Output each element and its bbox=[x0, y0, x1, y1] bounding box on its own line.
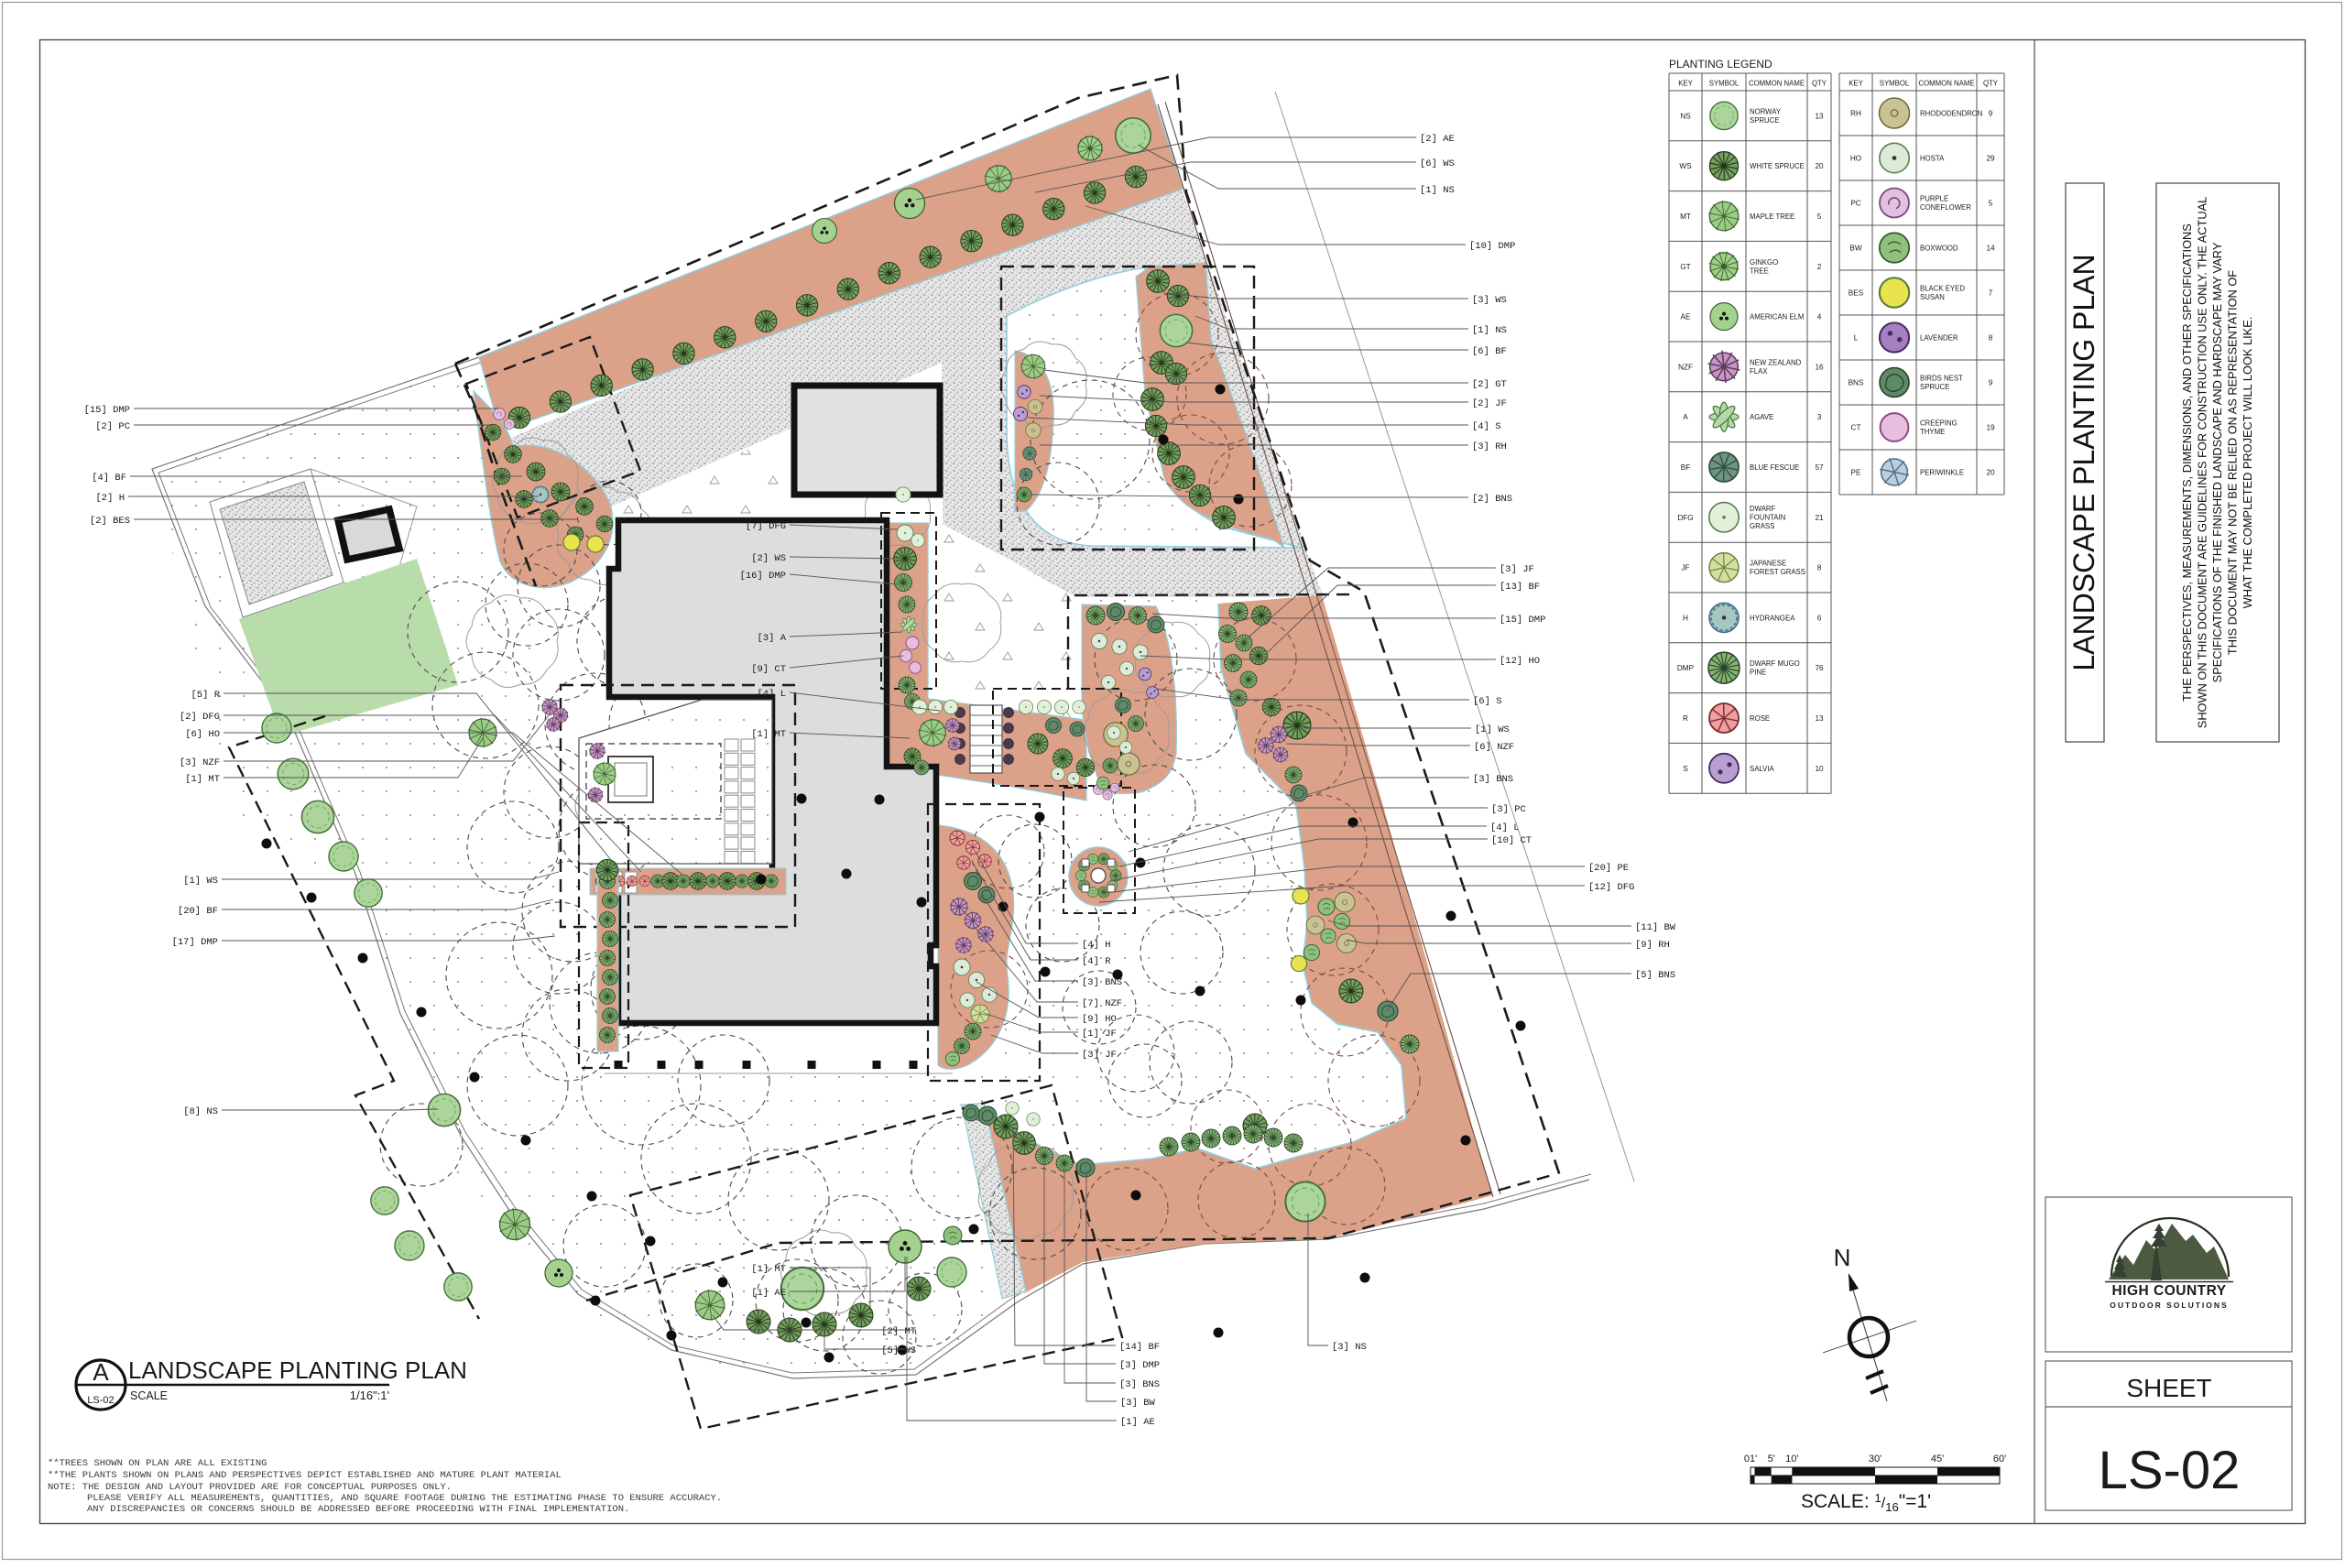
svg-text:[3] DMP: [3] DMP bbox=[1119, 1360, 1160, 1371]
svg-text:HOSTA: HOSTA bbox=[1920, 155, 1945, 163]
svg-text:COMMON NAME: COMMON NAME bbox=[1918, 80, 1974, 88]
svg-text:[15] DMP: [15] DMP bbox=[1500, 615, 1545, 626]
svg-text:[2] BES: [2] BES bbox=[90, 516, 130, 527]
svg-text:THE PERSPECTIVES, MEASUREMENTS: THE PERSPECTIVES, MEASUREMENTS, DIMENSIO… bbox=[2180, 223, 2194, 702]
svg-text:RH: RH bbox=[1850, 110, 1861, 118]
svg-text:HYDRANGEA: HYDRANGEA bbox=[1750, 614, 1795, 622]
svg-text:[3] BW: [3] BW bbox=[1120, 1398, 1156, 1409]
svg-text:[12] HO: [12] HO bbox=[1500, 656, 1540, 667]
svg-text:[6] S: [6] S bbox=[1473, 696, 1502, 707]
svg-text:SHOWN ON THIS DOCUMENT ARE GUI: SHOWN ON THIS DOCUMENT ARE GUIDELINES FO… bbox=[2196, 197, 2209, 728]
svg-text:H: H bbox=[1683, 614, 1688, 622]
svg-text:THIS DOCUMENT MAY NOT BE RELIE: THIS DOCUMENT MAY NOT BE RELIED ON AS RE… bbox=[2226, 270, 2240, 655]
svg-text:[20] BF: [20] BF bbox=[178, 906, 218, 917]
svg-text:SHEET: SHEET bbox=[2126, 1374, 2211, 1402]
svg-text:AGAVE: AGAVE bbox=[1750, 413, 1773, 421]
svg-text:[14] BF: [14] BF bbox=[1119, 1342, 1160, 1353]
svg-text:BIRDS NEST: BIRDS NEST bbox=[1920, 375, 1963, 383]
svg-text:PLANTING LEGEND: PLANTING LEGEND bbox=[1669, 58, 1772, 71]
svg-text:[13] BF: [13] BF bbox=[1500, 582, 1540, 593]
svg-text:BLUE FESCUE: BLUE FESCUE bbox=[1750, 463, 1799, 472]
svg-text:QTY: QTY bbox=[1812, 80, 1827, 88]
svg-text:19: 19 bbox=[1986, 424, 1995, 432]
svg-text:[5] BNS: [5] BNS bbox=[1635, 970, 1675, 981]
svg-text:FLAX: FLAX bbox=[1750, 367, 1768, 376]
svg-text:SCALE: 1/16"=1': SCALE: 1/16"=1' bbox=[1801, 1491, 1931, 1514]
svg-text:60': 60' bbox=[1993, 1454, 2006, 1465]
svg-text:[9] CT: [9] CT bbox=[751, 664, 786, 675]
svg-text:CONEFLOWER: CONEFLOWER bbox=[1920, 203, 1971, 212]
svg-text:RHODODENDRON: RHODODENDRON bbox=[1920, 110, 1982, 118]
svg-text:20: 20 bbox=[1986, 469, 1995, 477]
svg-text:[15] DMP: [15] DMP bbox=[84, 405, 130, 416]
svg-text:BW: BW bbox=[1849, 245, 1861, 253]
svg-text:3: 3 bbox=[1817, 413, 1822, 421]
svg-text:[1] WS: [1] WS bbox=[1475, 724, 1510, 735]
svg-text:L: L bbox=[1854, 334, 1859, 343]
svg-text:FOREST GRASS: FOREST GRASS bbox=[1750, 568, 1805, 576]
svg-text:21: 21 bbox=[1815, 514, 1824, 522]
svg-text:[1] NS: [1] NS bbox=[1472, 325, 1507, 336]
svg-text:1/16":1': 1/16":1' bbox=[350, 1388, 389, 1402]
svg-text:WS: WS bbox=[1679, 162, 1692, 170]
svg-text:ROSE: ROSE bbox=[1750, 714, 1770, 723]
svg-text:[2] MT: [2] MT bbox=[881, 1326, 916, 1337]
svg-text:PINE: PINE bbox=[1750, 669, 1766, 677]
svg-text:[7] NZF: [7] NZF bbox=[1082, 998, 1122, 1009]
svg-text:[1] MT: [1] MT bbox=[751, 729, 786, 740]
svg-text:[1] NS: [1] NS bbox=[1420, 185, 1455, 196]
svg-text:[9] HO: [9] HO bbox=[1082, 1014, 1117, 1025]
svg-text:NOTE: THE DESIGN AND LAYOUT P: NOTE: THE DESIGN AND LAYOUT PROVIDED ARE… bbox=[48, 1482, 452, 1493]
svg-text:[3] A: [3] A bbox=[757, 633, 786, 644]
svg-text:AMERICAN ELM: AMERICAN ELM bbox=[1750, 313, 1804, 321]
svg-text:[2] WS: [2] WS bbox=[751, 553, 786, 564]
svg-text:[2] BNS: [2] BNS bbox=[1472, 494, 1512, 505]
svg-text:SYMBOL: SYMBOL bbox=[1880, 80, 1910, 88]
svg-text:[1] AE: [1] AE bbox=[751, 1288, 786, 1299]
svg-text:[4] BF: [4] BF bbox=[92, 473, 126, 484]
svg-text:30': 30' bbox=[1869, 1454, 1881, 1465]
svg-text:BOXWOOD: BOXWOOD bbox=[1920, 245, 1958, 253]
svg-text:4: 4 bbox=[1817, 313, 1822, 321]
svg-text:R: R bbox=[1683, 714, 1688, 723]
svg-text:9: 9 bbox=[1989, 379, 1993, 387]
svg-text:COMMON NAME: COMMON NAME bbox=[1749, 80, 1805, 88]
svg-text:13: 13 bbox=[1815, 112, 1824, 120]
svg-text:[12] DFG: [12] DFG bbox=[1588, 882, 1634, 893]
svg-text:[2] DFG: [2] DFG bbox=[180, 712, 220, 723]
svg-text:5: 5 bbox=[1989, 200, 1993, 208]
svg-text:PE: PE bbox=[1851, 469, 1861, 477]
svg-text:14: 14 bbox=[1986, 245, 1995, 253]
svg-text:LS-02: LS-02 bbox=[87, 1395, 114, 1406]
svg-text:13: 13 bbox=[1815, 714, 1824, 723]
svg-text:AE: AE bbox=[1681, 313, 1691, 321]
svg-text:01': 01' bbox=[1744, 1454, 1757, 1465]
svg-text:[10] CT: [10] CT bbox=[1491, 835, 1532, 846]
svg-text:GT: GT bbox=[1680, 263, 1690, 271]
svg-text:NZF: NZF bbox=[1678, 363, 1693, 371]
svg-text:WHITE SPRUCE: WHITE SPRUCE bbox=[1750, 162, 1805, 170]
svg-text:KEY: KEY bbox=[1849, 80, 1863, 88]
svg-text:GINKGO: GINKGO bbox=[1750, 258, 1778, 267]
svg-text:HO: HO bbox=[1850, 155, 1861, 163]
svg-text:TREE: TREE bbox=[1750, 267, 1769, 275]
svg-text:[3] NZF: [3] NZF bbox=[180, 757, 220, 768]
svg-text:A: A bbox=[93, 1358, 109, 1386]
svg-text:PC: PC bbox=[1850, 200, 1860, 208]
svg-text:[6] BF: [6] BF bbox=[1472, 346, 1507, 357]
svg-text:DWARF MUGO: DWARF MUGO bbox=[1750, 659, 1800, 668]
svg-text:[4] R: [4] R bbox=[1082, 956, 1111, 967]
svg-text:57: 57 bbox=[1815, 463, 1824, 472]
svg-text:[6] WS: [6] WS bbox=[1420, 158, 1455, 169]
svg-text:CT: CT bbox=[1851, 424, 1861, 432]
svg-text:[10] DMP: [10] DMP bbox=[1469, 241, 1515, 252]
svg-text:JF: JF bbox=[1681, 564, 1689, 572]
svg-text:[1] WS: [1] WS bbox=[183, 876, 218, 887]
svg-text:[11] BW: [11] BW bbox=[1635, 922, 1676, 933]
svg-text:KEY: KEY bbox=[1678, 80, 1693, 88]
svg-text:NS: NS bbox=[1680, 112, 1691, 120]
svg-text:MT: MT bbox=[1680, 212, 1691, 221]
svg-text:[2] H: [2] H bbox=[95, 493, 125, 504]
svg-text:9: 9 bbox=[1989, 110, 1993, 118]
svg-text:PLEASE VERIFY ALL MEASUREMENTS: PLEASE VERIFY ALL MEASUREMENTS, QUANTITI… bbox=[87, 1493, 722, 1504]
svg-text:SPRUCE: SPRUCE bbox=[1920, 383, 1950, 391]
svg-text:[16] DMP: [16] DMP bbox=[740, 571, 786, 582]
svg-text:45': 45' bbox=[1931, 1454, 1944, 1465]
svg-text:SPECIFICATIONS OF THE FINISHED: SPECIFICATIONS OF THE FINISHED LANDSCAPE… bbox=[2210, 242, 2224, 682]
svg-text:SUSAN: SUSAN bbox=[1920, 293, 1945, 301]
svg-text:5: 5 bbox=[1817, 212, 1822, 221]
svg-text:[3] JF: [3] JF bbox=[1082, 1050, 1117, 1061]
svg-text:PURPLE: PURPLE bbox=[1920, 195, 1948, 203]
svg-text:16: 16 bbox=[1815, 363, 1824, 371]
svg-text:**THE PLANTS SHOWN ON PLANS AN: **THE PLANTS SHOWN ON PLANS AND PERSPECT… bbox=[48, 1470, 562, 1481]
svg-text:[1] MT: [1] MT bbox=[185, 774, 220, 785]
svg-text:LANDSCAPE PLANTING PLAN: LANDSCAPE PLANTING PLAN bbox=[128, 1356, 467, 1384]
svg-text:[3] PC: [3] PC bbox=[1491, 804, 1526, 815]
svg-text:JAPANESE: JAPANESE bbox=[1750, 560, 1786, 568]
svg-text:6: 6 bbox=[1817, 614, 1822, 622]
svg-text:[2] PC: [2] PC bbox=[95, 421, 130, 432]
svg-text:**TREES SHOWN ON PLAN ARE ALL: **TREES SHOWN ON PLAN ARE ALL EXISTING bbox=[48, 1458, 267, 1469]
svg-text:BF: BF bbox=[1681, 463, 1690, 472]
svg-text:[1] AE: [1] AE bbox=[1120, 1417, 1155, 1428]
svg-text:7: 7 bbox=[1989, 289, 1993, 298]
svg-text:PERIWINKLE: PERIWINKLE bbox=[1920, 469, 1964, 477]
svg-text:[20] PE: [20] PE bbox=[1588, 863, 1629, 874]
svg-text:29: 29 bbox=[1986, 155, 1995, 163]
svg-text:[3] BNS: [3] BNS bbox=[1082, 977, 1122, 988]
svg-text:[3] BNS: [3] BNS bbox=[1473, 774, 1513, 785]
svg-text:[3] BNS: [3] BNS bbox=[1119, 1379, 1160, 1390]
svg-text:ANY DISCREPANCIES OR CONCERNS: ANY DISCREPANCIES OR CONCERNS SHOULD BE … bbox=[87, 1504, 629, 1515]
svg-text:BNS: BNS bbox=[1849, 379, 1864, 387]
svg-text:BLACK EYED: BLACK EYED bbox=[1920, 285, 1965, 293]
svg-text:[4] L: [4] L bbox=[1490, 822, 1520, 833]
svg-text:GRASS: GRASS bbox=[1750, 522, 1774, 530]
svg-text:[4] S: [4] S bbox=[1472, 421, 1501, 432]
svg-text:NEW ZEALAND: NEW ZEALAND bbox=[1750, 358, 1802, 366]
svg-text:SALVIA: SALVIA bbox=[1750, 765, 1775, 773]
svg-text:76: 76 bbox=[1815, 664, 1824, 672]
svg-text:MAPLE TREE: MAPLE TREE bbox=[1750, 212, 1794, 221]
svg-text:S: S bbox=[1683, 765, 1688, 773]
svg-text:10': 10' bbox=[1785, 1454, 1798, 1465]
svg-text:[6] NZF: [6] NZF bbox=[1474, 742, 1514, 753]
svg-text:10: 10 bbox=[1815, 765, 1824, 773]
svg-text:HIGH COUNTRY: HIGH COUNTRY bbox=[2111, 1283, 2226, 1299]
svg-text:[2] AE: [2] AE bbox=[1420, 134, 1455, 145]
svg-text:A: A bbox=[1683, 413, 1688, 421]
svg-text:OUTDOOR SOLUTIONS: OUTDOOR SOLUTIONS bbox=[2110, 1301, 2228, 1310]
svg-text:[3] WS: [3] WS bbox=[1472, 295, 1507, 306]
svg-text:[3] NS: [3] NS bbox=[1332, 1342, 1367, 1353]
svg-text:[8] NS: [8] NS bbox=[183, 1106, 218, 1117]
svg-text:SYMBOL: SYMBOL bbox=[1709, 80, 1740, 88]
svg-text:QTY: QTY bbox=[1983, 80, 1999, 88]
svg-text:8: 8 bbox=[1989, 334, 1993, 343]
svg-text:[4] H: [4] H bbox=[1082, 940, 1111, 951]
svg-text:2: 2 bbox=[1817, 263, 1822, 271]
svg-text:[17] DMP: [17] DMP bbox=[172, 937, 218, 948]
svg-text:[7] DFG: [7] DFG bbox=[746, 521, 786, 532]
svg-text:5': 5' bbox=[1768, 1454, 1775, 1465]
svg-text:LAVENDER: LAVENDER bbox=[1920, 334, 1958, 343]
svg-text:[5] WS: [5] WS bbox=[881, 1345, 916, 1356]
svg-text:SCALE: SCALE bbox=[130, 1389, 168, 1402]
svg-text:[1] JF: [1] JF bbox=[1082, 1029, 1117, 1040]
svg-text:[3] JF: [3] JF bbox=[1500, 564, 1534, 575]
svg-text:8: 8 bbox=[1817, 564, 1822, 572]
svg-text:LS-02: LS-02 bbox=[2099, 1441, 2241, 1500]
svg-text:[2] JF: [2] JF bbox=[1472, 398, 1507, 409]
svg-text:[1] MT: [1] MT bbox=[751, 1264, 786, 1275]
svg-text:[9] RH: [9] RH bbox=[1635, 940, 1670, 951]
svg-text:[3] RH: [3] RH bbox=[1472, 441, 1507, 452]
svg-text:DWARF: DWARF bbox=[1750, 505, 1776, 513]
svg-text:SPRUCE: SPRUCE bbox=[1750, 116, 1780, 125]
svg-text:BES: BES bbox=[1849, 289, 1864, 298]
svg-text:DFG: DFG bbox=[1677, 514, 1693, 522]
svg-text:THYME: THYME bbox=[1920, 428, 1945, 436]
svg-text:WHAT THE COMPLETED PROJECT WI: WHAT THE COMPLETED PROJECT WILL LOOK LIK… bbox=[2241, 317, 2254, 609]
svg-text:CREEPING: CREEPING bbox=[1920, 419, 1958, 428]
svg-text:NORWAY: NORWAY bbox=[1750, 107, 1782, 115]
svg-text:20: 20 bbox=[1815, 162, 1824, 170]
svg-text:N: N bbox=[1834, 1244, 1851, 1271]
svg-text:LANDSCAPE PLANTING PLAN: LANDSCAPE PLANTING PLAN bbox=[2067, 254, 2100, 670]
svg-text:[2] GT: [2] GT bbox=[1472, 379, 1507, 390]
svg-text:[5] R: [5] R bbox=[191, 690, 220, 701]
svg-text:[6] HO: [6] HO bbox=[185, 729, 220, 740]
svg-text:[4] L: [4] L bbox=[757, 689, 786, 700]
svg-text:FOUNTAIN: FOUNTAIN bbox=[1750, 513, 1785, 521]
svg-text:DMP: DMP bbox=[1677, 664, 1695, 672]
